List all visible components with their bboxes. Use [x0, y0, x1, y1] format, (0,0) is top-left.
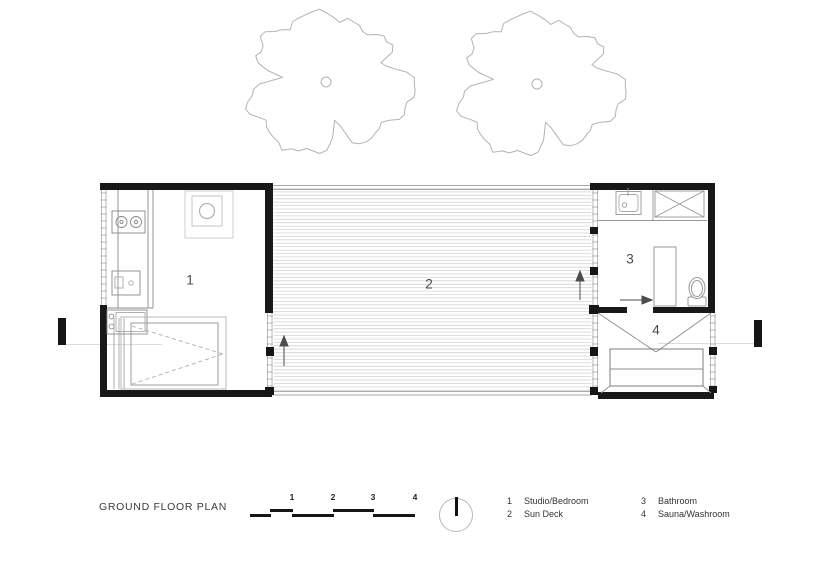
floor-plan-page: 1 2 3 4 GROUND FLOOR PLAN 1 2 3 4 1 Stud…	[0, 0, 822, 570]
bathroom-sink-icon	[616, 188, 641, 215]
scale-tick: 3	[371, 492, 376, 502]
entry-arrow-right	[576, 271, 584, 300]
page-title: GROUND FLOOR PLAN	[99, 501, 227, 513]
scale-bar-segment	[333, 509, 374, 512]
legend-label: Sauna/Washroom	[658, 509, 730, 520]
scale-bar-segment	[250, 514, 271, 517]
floor-plan-drawing	[0, 0, 822, 570]
legend-number: 3	[641, 496, 658, 507]
north-arrow-icon	[439, 498, 473, 532]
bed-icon	[114, 317, 226, 389]
tree-icon	[457, 11, 626, 155]
legend-column-1: 1 Studio/Bedroom 2 Sun Deck	[507, 496, 589, 520]
legend-label: Sun Deck	[524, 509, 589, 520]
stove-icon	[112, 211, 145, 233]
legend-label: Studio/Bedroom	[524, 496, 589, 507]
entry-arrow-left	[280, 336, 288, 366]
room-label-studio: 1	[186, 273, 194, 288]
tree-canopies	[246, 9, 626, 155]
bathroom-door-arrow	[620, 296, 652, 304]
window-glazing	[101, 190, 716, 390]
north-needle	[455, 497, 458, 516]
legend-number: 2	[507, 509, 524, 520]
room-label-sauna: 4	[652, 323, 660, 338]
legend-label: Bathroom	[658, 496, 730, 507]
room-label-sundeck: 2	[425, 277, 433, 292]
scale-tick: 2	[331, 492, 336, 502]
legend-number: 1	[507, 496, 524, 507]
tree-icon	[246, 9, 416, 153]
legend-column-2: 3 Bathroom 4 Sauna/Washroom	[641, 496, 730, 520]
appliance-icon	[107, 310, 147, 334]
room-label-bathroom: 3	[626, 252, 634, 267]
scale-bar-segment	[270, 509, 293, 512]
bathroom-counter	[598, 190, 707, 221]
storage-xbox-icon	[655, 191, 704, 217]
scale-tick: 4	[413, 492, 418, 502]
scale-tick: 1	[290, 492, 295, 502]
scale-bar-segment	[292, 514, 334, 517]
kitchen-counter	[107, 190, 153, 308]
shower-cabinet-icon	[654, 247, 676, 306]
wood-stove-icon	[185, 191, 233, 238]
toilet-icon	[688, 278, 706, 307]
kitchen-sink-icon	[112, 271, 140, 295]
scale-bar-segment	[373, 514, 415, 517]
legend-number: 4	[641, 509, 658, 520]
